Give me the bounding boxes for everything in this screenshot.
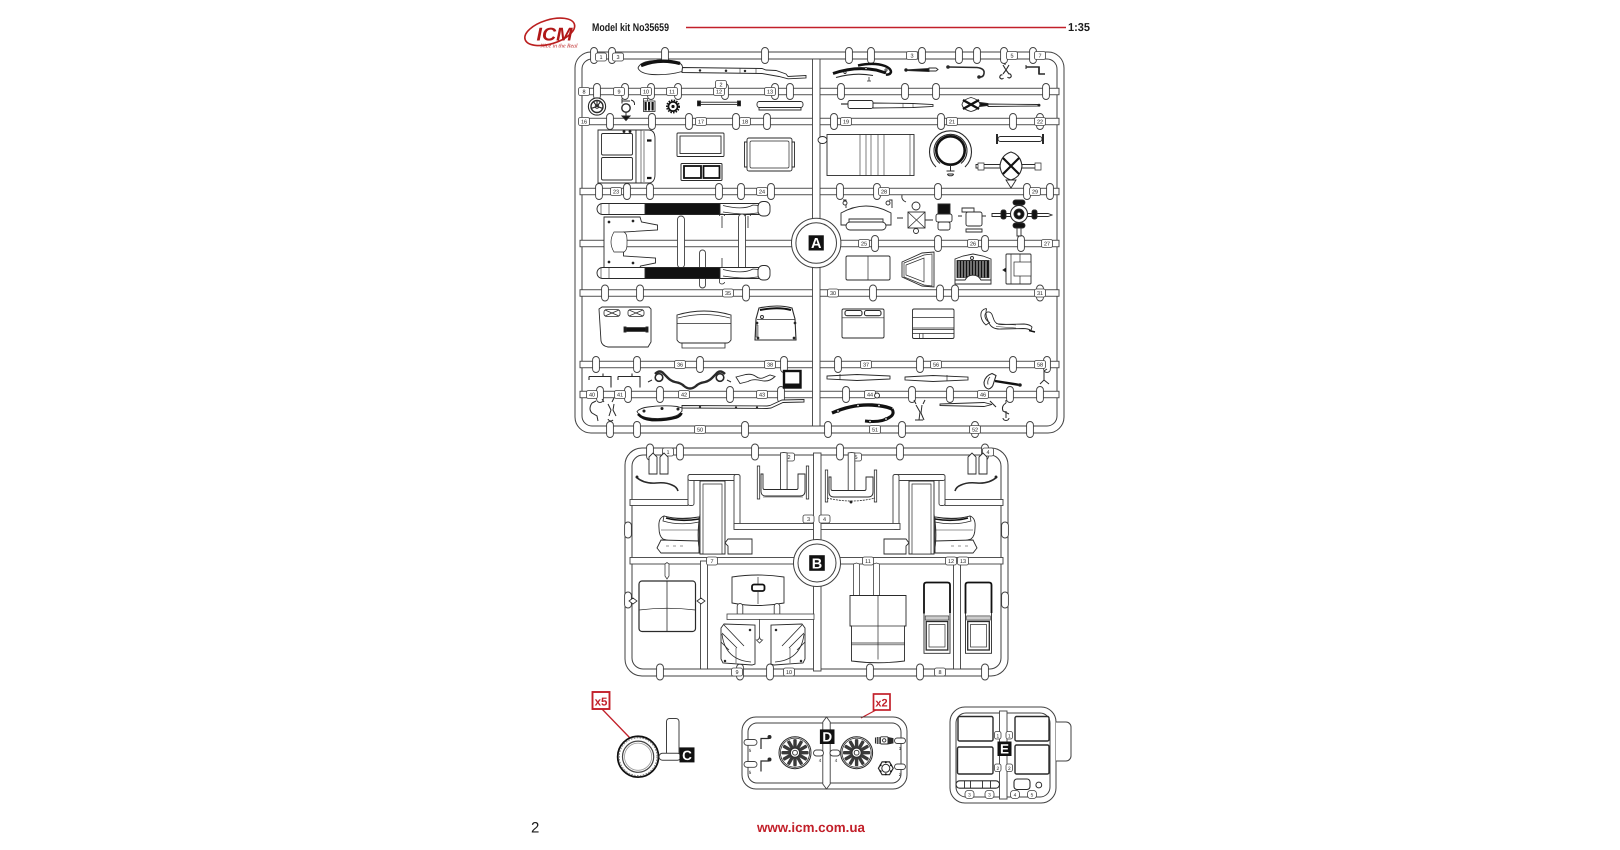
svg-text:8: 8 <box>938 670 941 676</box>
svg-text:41: 41 <box>617 393 623 399</box>
svg-text:3: 3 <box>988 793 991 799</box>
svg-text:13: 13 <box>960 559 966 565</box>
svg-text:4: 4 <box>835 758 838 763</box>
svg-text:4: 4 <box>986 450 989 456</box>
svg-text:31: 31 <box>1037 291 1043 297</box>
svg-text:1: 1 <box>996 734 999 740</box>
svg-text:9: 9 <box>617 90 620 96</box>
svg-text:1: 1 <box>1008 734 1011 740</box>
svg-text:1: 1 <box>666 450 669 456</box>
svg-text:5: 5 <box>749 748 752 753</box>
svg-text:x5: x5 <box>595 697 608 709</box>
svg-text:21: 21 <box>949 120 955 126</box>
svg-text:A: A <box>811 236 822 252</box>
svg-text:C: C <box>682 748 692 763</box>
svg-text:30: 30 <box>830 291 836 297</box>
svg-text:38: 38 <box>767 363 773 369</box>
svg-text:35: 35 <box>725 291 731 297</box>
svg-text:D: D <box>822 730 832 745</box>
svg-text:56: 56 <box>933 363 939 369</box>
svg-text:2: 2 <box>787 455 790 461</box>
svg-text:www.icm.com.ua: www.icm.com.ua <box>756 820 865 835</box>
svg-text:5: 5 <box>1031 793 1034 799</box>
svg-text:10: 10 <box>643 90 649 96</box>
svg-text:22: 22 <box>1037 120 1043 126</box>
svg-text:19: 19 <box>843 120 849 126</box>
svg-text:2: 2 <box>531 820 539 837</box>
svg-text:4: 4 <box>1014 793 1017 799</box>
svg-text:37: 37 <box>863 363 869 369</box>
svg-text:10: 10 <box>786 670 792 676</box>
svg-text:29: 29 <box>1032 190 1038 196</box>
svg-text:Model kit No35659: Model kit No35659 <box>592 22 669 34</box>
svg-text:17: 17 <box>698 120 704 126</box>
svg-text:7: 7 <box>710 559 713 565</box>
svg-text:2: 2 <box>1008 766 1011 772</box>
svg-text:27: 27 <box>1044 242 1050 248</box>
svg-text:4: 4 <box>823 517 826 523</box>
svg-text:5: 5 <box>1010 54 1013 60</box>
svg-text:42: 42 <box>681 393 687 399</box>
svg-text:23: 23 <box>613 190 619 196</box>
svg-text:x2: x2 <box>875 698 887 710</box>
svg-text:4: 4 <box>819 758 822 763</box>
svg-text:1: 1 <box>599 55 602 61</box>
svg-text:28: 28 <box>881 190 887 196</box>
svg-text:51: 51 <box>872 428 878 434</box>
svg-text:43: 43 <box>759 393 765 399</box>
svg-text:12: 12 <box>716 90 722 96</box>
svg-text:3: 3 <box>968 793 971 799</box>
svg-text:44: 44 <box>867 393 873 399</box>
svg-text:3: 3 <box>910 54 913 60</box>
svg-text:40: 40 <box>589 393 595 399</box>
svg-text:16: 16 <box>581 120 587 126</box>
svg-text:36: 36 <box>677 363 683 369</box>
svg-text:24: 24 <box>759 190 765 196</box>
svg-text:18: 18 <box>742 120 748 126</box>
svg-text:50: 50 <box>697 428 703 434</box>
svg-text:Nice in the Real: Nice in the Real <box>539 42 578 49</box>
svg-text:13: 13 <box>767 90 773 96</box>
svg-text:9: 9 <box>735 670 738 676</box>
svg-text:E: E <box>1000 742 1009 757</box>
svg-text:26: 26 <box>970 242 976 248</box>
svg-text:7: 7 <box>1038 54 1041 60</box>
svg-text:B: B <box>812 556 822 572</box>
svg-text:11: 11 <box>669 90 675 96</box>
svg-text:46: 46 <box>980 393 986 399</box>
svg-text:ICM: ICM <box>537 24 574 45</box>
svg-text:12: 12 <box>948 559 954 565</box>
svg-text:3: 3 <box>616 55 619 61</box>
svg-text:2: 2 <box>996 766 999 772</box>
svg-text:11: 11 <box>865 559 871 565</box>
svg-text:8: 8 <box>582 90 585 96</box>
svg-text:58: 58 <box>1037 363 1043 369</box>
svg-text:25: 25 <box>861 242 867 248</box>
svg-text:2: 2 <box>719 83 722 89</box>
svg-text:1:35: 1:35 <box>1068 22 1091 34</box>
svg-text:52: 52 <box>972 428 978 434</box>
svg-text:5: 5 <box>749 770 752 775</box>
svg-text:3: 3 <box>807 517 810 523</box>
